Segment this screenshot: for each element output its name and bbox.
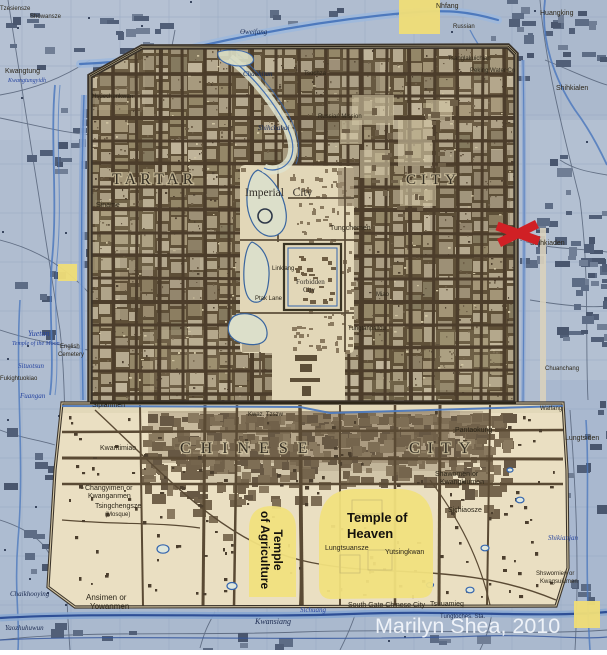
svg-text:Watfang: Watfang [540, 406, 562, 412]
svg-text:Ansimen or: Ansimen or [86, 593, 127, 602]
svg-text:Kwangkiumen: Kwangkiumen [440, 479, 484, 486]
svg-text:Chuanchang: Chuanchang [545, 366, 579, 372]
svg-text:Marilyn Shea, 2010: Marilyn Shea, 2010 [375, 614, 560, 638]
svg-text:Yaozhuhuwun: Yaozhuhuwun [5, 624, 44, 632]
svg-text:Lungtsiden: Lungtsiden [565, 435, 599, 442]
svg-text:Pantaokung: Pantaokung [455, 427, 492, 434]
svg-text:CITY: CITY [409, 440, 478, 457]
svg-text:Fukightuokiao: Fukightuokiao [0, 376, 38, 382]
svg-text:Imperial City: Imperial City [245, 187, 313, 199]
svg-text:Russian Mission: Russian Mission [318, 114, 362, 120]
svg-text:Hsuechenkwan: Hsuechenkwan [92, 94, 133, 100]
svg-text:Showansze: Showansze [30, 14, 62, 20]
svg-text:(Mosque): (Mosque) [105, 512, 130, 518]
svg-text:Temple of the Moon: Temple of the Moon [12, 340, 60, 347]
svg-text:TARTAR: TARTAR [112, 171, 198, 188]
svg-text:Linkiang: Linkiang [272, 266, 294, 272]
svg-text:Russian: Russian [453, 24, 475, 30]
svg-text:Kwangtung: Kwangtung [5, 68, 40, 75]
svg-text:Tsuuamieg: Tsuuamieg [430, 601, 464, 608]
svg-text:Forbidden: Forbidden [296, 278, 325, 286]
svg-text:Peking Water Co: Peking Water Co [470, 68, 516, 74]
svg-text:Tungchemen: Tungchemen [330, 225, 371, 232]
svg-text:Temple: Temple [271, 529, 285, 570]
svg-text:Nhfang: Nhfang [436, 3, 459, 10]
svg-text:Yowanmen: Yowanmen [90, 602, 129, 611]
svg-text:Sichuang: Sichuang [300, 606, 327, 614]
svg-text:South Gate Chinese City: South Gate Chinese City [348, 602, 426, 609]
svg-text:Changyimen or: Changyimen or [85, 485, 133, 492]
svg-text:Tsanglakuichian: Tsanglakuichian [448, 56, 491, 62]
svg-text:Temple of: Temple of [347, 510, 408, 525]
svg-text:Kwagsujumen: Kwagsujumen [540, 579, 578, 585]
svg-text:Tungtanpailou: Tungtanpailou [348, 326, 386, 332]
svg-text:Tzesiensze: Tzesiensze [0, 6, 31, 12]
svg-text:Yuetan: Yuetan [28, 329, 50, 338]
svg-text:Fuangan: Fuangan [19, 392, 46, 400]
svg-text:Miao: Miao [376, 292, 390, 298]
svg-text:Shawomen or: Shawomen or [435, 471, 479, 478]
svg-text:Kwaz. Tzszw: Kwaz. Tzszw [248, 412, 284, 418]
svg-text:Chaohitan: Chaohitan [243, 70, 273, 78]
svg-text:of Agriculture: of Agriculture [258, 511, 272, 590]
svg-text:Tsingchengsze: Tsingchengsze [95, 503, 141, 510]
svg-text:Ptak Lane: Ptak Lane [255, 296, 283, 302]
svg-text:Lungtsuansze: Lungtsuansze [325, 545, 369, 552]
svg-text:Yutsingkwan: Yutsingkwan [385, 549, 424, 556]
svg-text:English: English [60, 344, 80, 350]
svg-text:Kwansiang: Kwansiang [254, 617, 291, 626]
svg-text:Huangking: Huangking [540, 10, 574, 17]
svg-text:Kwantimiao: Kwantimiao [100, 445, 136, 452]
svg-text:Kwanganmen: Kwanganmen [88, 493, 131, 500]
svg-text:Sichiaosze: Sichiaosze [448, 507, 482, 514]
svg-text:Ɵweifang: Ɵweifang [240, 28, 268, 36]
svg-text:Shihkialen: Shihkialen [556, 85, 588, 92]
svg-text:Situotsun: Situotsun [18, 362, 45, 370]
svg-text:Shihchahai: Shihchahai [258, 124, 290, 132]
svg-text:Shswornien or: Shswornien or [536, 571, 574, 577]
svg-text:Siname: Siname [96, 202, 120, 209]
svg-text:Sipianmen: Sipianmen [92, 402, 125, 409]
svg-text:Shikianjan: Shikianjan [548, 534, 578, 542]
svg-text:Chaikhooying: Chaikhooying [10, 590, 50, 598]
svg-text:CITY: CITY [406, 172, 461, 188]
svg-text:Heaven: Heaven [347, 526, 393, 541]
svg-text:Kwangtungyidh: Kwangtungyidh [7, 78, 46, 84]
svg-text:Cemetery: Cemetery [58, 352, 84, 358]
svg-text:CHINESE: CHINESE [180, 440, 318, 457]
svg-text:City: City [303, 286, 316, 294]
svg-text:Tsochza: Tsochza [304, 71, 327, 77]
